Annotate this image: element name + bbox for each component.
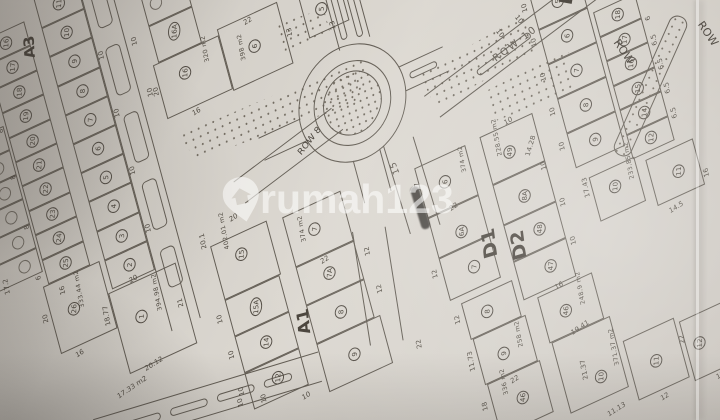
road-overlay-layer: 15ROW 10ROWROWD1010 — [0, 0, 720, 420]
road-label-row-ne1: ROW — [611, 37, 637, 67]
planted-area — [611, 13, 690, 160]
road — [352, 227, 404, 346]
ink-smudge — [409, 185, 430, 230]
road-label: 15 — [388, 160, 402, 176]
paper-fold-line — [696, 0, 699, 420]
road: 15 — [383, 137, 440, 234]
plan-drawing: 1617181920212223242511109876543256789181… — [0, 0, 720, 420]
site-plan-photo: 1617181920212223242511109876543256789181… — [0, 0, 720, 420]
